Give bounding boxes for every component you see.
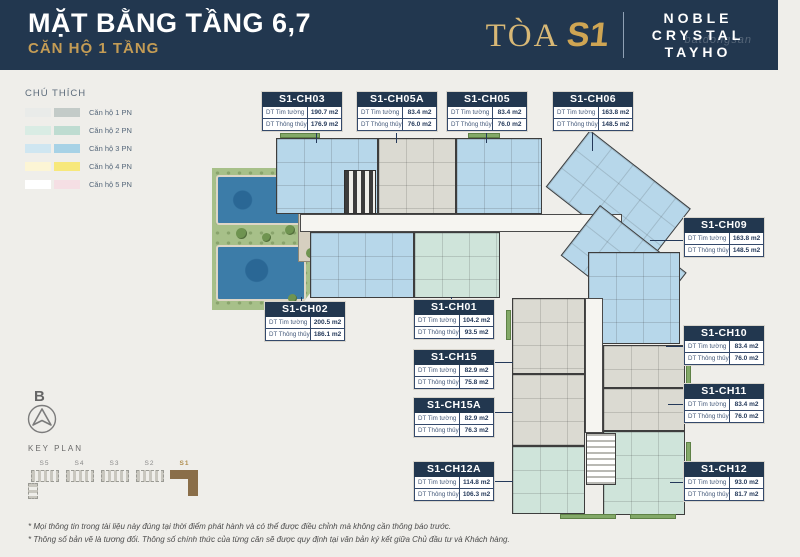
- area-type: DT Tim tường: [685, 233, 730, 244]
- area-value: 148.5 m2: [599, 119, 632, 130]
- unit-label-s1-ch15: S1-CH15 DT Tim tường82.9 m2 DT Thông thủ…: [414, 350, 494, 389]
- area-value: 186.1 m2: [311, 329, 344, 340]
- unit-id: S1-CH12A: [414, 462, 494, 477]
- area-value: 76.0 m2: [730, 353, 763, 364]
- legend-label: Căn hộ 4 PN: [89, 162, 132, 171]
- tree-icon: [262, 233, 271, 242]
- unit-area-ch10: [603, 345, 685, 388]
- keyplan-buildings: S5 S4 S3 S2 S1: [28, 460, 203, 512]
- legend-label: Căn hộ 1 PN: [89, 108, 132, 117]
- area-type: DT Thông thủy: [685, 353, 730, 364]
- unit-label-s1-ch06: S1-CH06 DT Tim tường163.8 m2 DT Thông th…: [553, 92, 633, 131]
- keyplan-building-s3: S3: [98, 460, 131, 482]
- unit-label-s1-ch05: S1-CH05 DT Tim tường83.4 m2 DT Thông thủ…: [447, 92, 527, 131]
- unit-label-s1-ch10: S1-CH10 DT Tim tường83.4 m2 DT Thông thủ…: [684, 326, 764, 365]
- leader-line-ch05a: [396, 133, 397, 143]
- area-value: 76.0 m2: [403, 119, 436, 130]
- unit-label-s1-ch09: S1-CH09 DT Tim tường163.8 m2 DT Thông th…: [684, 218, 764, 257]
- unit-id: S1-CH15A: [414, 398, 494, 413]
- corridor-top: [300, 214, 622, 232]
- area-value: 83.4 m2: [730, 341, 763, 352]
- swatch-dark: [54, 108, 80, 117]
- keyplan-building-s2: S2: [133, 460, 166, 482]
- unit-id: S1-CH05A: [357, 92, 437, 107]
- unit-area-ch12a: [512, 446, 585, 514]
- area-type: DT Thông thủy: [415, 425, 460, 436]
- unit-label-s1-ch02: S1-CH02 DT Tim tường200.5 m2 DT Thông th…: [265, 302, 345, 341]
- area-value: 104.2 m2: [460, 315, 493, 326]
- area-value: 76.3 m2: [460, 425, 493, 436]
- leader-line-ch11: [668, 404, 684, 405]
- area-value: 114.8 m2: [460, 477, 493, 488]
- keyplan-title: KEY PLAN: [28, 444, 83, 453]
- swatch-dark: [54, 126, 80, 135]
- area-value: 82.9 m2: [460, 365, 493, 376]
- unit-label-s1-ch01: S1-CH01 DT Tim tường104.2 m2 DT Thông th…: [414, 300, 494, 339]
- legend-item-4pn: Căn hộ 4 PN: [25, 161, 132, 171]
- area-value: 82.9 m2: [460, 413, 493, 424]
- unit-label-s1-ch11: S1-CH11 DT Tim tường83.4 m2 DT Thông thủ…: [684, 384, 764, 423]
- area-type: DT Tim tường: [266, 317, 311, 328]
- keyplan-building-s1-highlighted: S1: [168, 460, 201, 467]
- area-value: 93.0 m2: [730, 477, 763, 488]
- brand-line: NOBLE: [664, 10, 733, 27]
- planter-strip: [560, 514, 616, 519]
- unit-label-s1-ch12a: S1-CH12A DT Tim tường114.8 m2 DT Thông t…: [414, 462, 494, 501]
- area-type: DT Tim tường: [685, 477, 730, 488]
- unit-area-ch05a: [378, 138, 456, 214]
- area-value: 81.7 m2: [730, 489, 763, 500]
- tower-name: S1: [565, 16, 611, 55]
- footnote-line: * Thông số bản vẽ là tương đối. Thông số…: [28, 533, 510, 546]
- tree-icon: [236, 228, 247, 239]
- watermark: batdongsan: [685, 34, 753, 46]
- swatch-dark: [54, 144, 80, 153]
- area-value: 148.5 m2: [730, 245, 763, 256]
- area-type: DT Thông thủy: [554, 119, 599, 130]
- unit-area-ch05: [456, 138, 542, 214]
- unit-area-ch11: [603, 388, 685, 431]
- corridor-right: [585, 298, 603, 433]
- area-type: DT Thông thủy: [263, 119, 308, 130]
- tower-logo: TÒA S1: [486, 16, 609, 55]
- unit-area-ch02: [310, 232, 414, 298]
- swatch-light: [25, 108, 51, 117]
- area-type: DT Thông thủy: [448, 119, 493, 130]
- unit-label-s1-ch05a: S1-CH05A DT Tim tường83.4 m2 DT Thông th…: [357, 92, 437, 131]
- swatch-light: [25, 144, 51, 153]
- leader-line-ch10: [666, 346, 684, 347]
- leader-line-ch15a: [494, 412, 513, 413]
- legend-label: Căn hộ 5 PN: [89, 180, 132, 189]
- footnote-line: * Mọi thông tin trong tài liệu này đúng …: [28, 520, 510, 533]
- area-type: DT Thông thủy: [685, 245, 730, 256]
- keyplan-building-s5: S5: [28, 460, 61, 499]
- leader-line-ch03: [316, 133, 317, 143]
- unit-id: S1-CH10: [684, 326, 764, 341]
- leader-line-ch09: [650, 240, 684, 241]
- area-type: DT Thông thủy: [358, 119, 403, 130]
- swatch-light: [25, 180, 51, 189]
- leader-line-ch12: [670, 482, 684, 483]
- planter-strip: [280, 133, 320, 138]
- area-type: DT Thông thủy: [415, 327, 460, 338]
- unit-area-ch01: [414, 232, 500, 298]
- area-type: DT Thông thủy: [415, 489, 460, 500]
- keyplan-building-s4: S4: [63, 460, 96, 482]
- unit-area-ch15a: [512, 374, 585, 446]
- legend-label: Căn hộ 3 PN: [89, 144, 132, 153]
- page-title: MẶT BẰNG TẦNG 6,7: [28, 8, 311, 38]
- unit-label-s1-ch03: S1-CH03 DT Tim tường190.7 m2 DT Thông th…: [262, 92, 342, 131]
- swatch-dark: [54, 162, 80, 171]
- logo-block: TÒA S1 NOBLE CRYSTAL TAYHO batdongsan: [486, 0, 758, 70]
- unit-label-s1-ch12: S1-CH12 DT Tim tường93.0 m2 DT Thông thủ…: [684, 462, 764, 501]
- area-value: 83.4 m2: [403, 107, 436, 118]
- legend-item-1pn: Căn hộ 1 PN: [25, 107, 132, 117]
- unit-id: S1-CH02: [265, 302, 345, 317]
- area-value: 83.4 m2: [493, 107, 526, 118]
- area-value: 75.8 m2: [460, 377, 493, 388]
- floorplan-page: MẶT BẰNG TẦNG 6,7 CĂN HỘ 1 TẦNG TÒA S1 N…: [0, 0, 800, 557]
- header-bar: MẶT BẰNG TẦNG 6,7 CĂN HỘ 1 TẦNG TÒA S1 N…: [0, 0, 778, 70]
- swatch-light: [25, 126, 51, 135]
- stair-core-right: [586, 433, 616, 485]
- area-value: 106.3 m2: [460, 489, 493, 500]
- area-value: 83.4 m2: [730, 399, 763, 410]
- title-block: MẶT BẰNG TẦNG 6,7 CĂN HỘ 1 TẦNG: [28, 8, 311, 57]
- planter-strip: [506, 310, 511, 340]
- area-value: 76.0 m2: [493, 119, 526, 130]
- unit-id: S1-CH03: [262, 92, 342, 107]
- area-type: DT Thông thủy: [685, 411, 730, 422]
- area-value: 163.8 m2: [730, 233, 763, 244]
- area-type: DT Tim tường: [358, 107, 403, 118]
- area-type: DT Tim tường: [415, 477, 460, 488]
- tower-prefix: TÒA: [486, 18, 560, 55]
- area-value: 190.7 m2: [308, 107, 341, 118]
- area-type: DT Tim tường: [415, 365, 460, 376]
- leader-line-ch06: [592, 133, 593, 151]
- swatch-dark: [54, 180, 80, 189]
- leader-line-ch05: [486, 133, 487, 143]
- leader-line-ch12a: [494, 481, 513, 482]
- area-type: DT Thông thủy: [685, 489, 730, 500]
- unit-id: S1-CH15: [414, 350, 494, 365]
- unit-id: S1-CH06: [553, 92, 633, 107]
- unit-id: S1-CH12: [684, 462, 764, 477]
- footnotes: * Mọi thông tin trong tài liệu này đúng …: [28, 520, 510, 546]
- area-value: 163.8 m2: [599, 107, 632, 118]
- leader-line-ch15: [494, 362, 513, 363]
- planter-strip: [468, 133, 500, 138]
- area-type: DT Thông thủy: [415, 377, 460, 388]
- legend-item-2pn: Căn hộ 2 PN: [25, 125, 132, 135]
- legend-label: Căn hộ 2 PN: [89, 126, 132, 135]
- unit-id: S1-CH11: [684, 384, 764, 399]
- area-type: DT Tim tường: [554, 107, 599, 118]
- legend-title: CHÚ THÍCH: [25, 88, 132, 99]
- compass-letter: B: [34, 388, 45, 405]
- elevator-core-top: [344, 170, 376, 214]
- area-type: DT Tim tường: [448, 107, 493, 118]
- area-type: DT Tim tường: [415, 315, 460, 326]
- area-value: 93.5 m2: [460, 327, 493, 338]
- swimming-pool-lower: [216, 245, 306, 301]
- unit-label-s1-ch15a: S1-CH15A DT Tim tường82.9 m2 DT Thông th…: [414, 398, 494, 437]
- area-value: 176.9 m2: [308, 119, 341, 130]
- logo-divider: [623, 12, 624, 58]
- unit-id: S1-CH05: [447, 92, 527, 107]
- unit-area-ch15: [512, 298, 585, 374]
- area-type: DT Thông thủy: [266, 329, 311, 340]
- area-value: 76.0 m2: [730, 411, 763, 422]
- legend: CHÚ THÍCH Căn hộ 1 PN Căn hộ 2 PN Căn hộ…: [25, 88, 132, 197]
- page-subtitle: CĂN HỘ 1 TẦNG: [28, 40, 311, 57]
- tree-icon: [285, 225, 295, 235]
- unit-id: S1-CH09: [684, 218, 764, 233]
- area-type: DT Tim tường: [685, 399, 730, 410]
- area-type: DT Tim tường: [685, 341, 730, 352]
- area-value: 200.5 m2: [311, 317, 344, 328]
- legend-item-5pn: Căn hộ 5 PN: [25, 179, 132, 189]
- planter-strip: [630, 514, 676, 519]
- legend-item-3pn: Căn hộ 3 PN: [25, 143, 132, 153]
- area-type: DT Tim tường: [263, 107, 308, 118]
- brand-line: TAYHO: [665, 44, 732, 61]
- unit-id: S1-CH01: [414, 300, 494, 315]
- swatch-light: [25, 162, 51, 171]
- compass-icon: [27, 404, 57, 439]
- area-type: DT Tim tường: [415, 413, 460, 424]
